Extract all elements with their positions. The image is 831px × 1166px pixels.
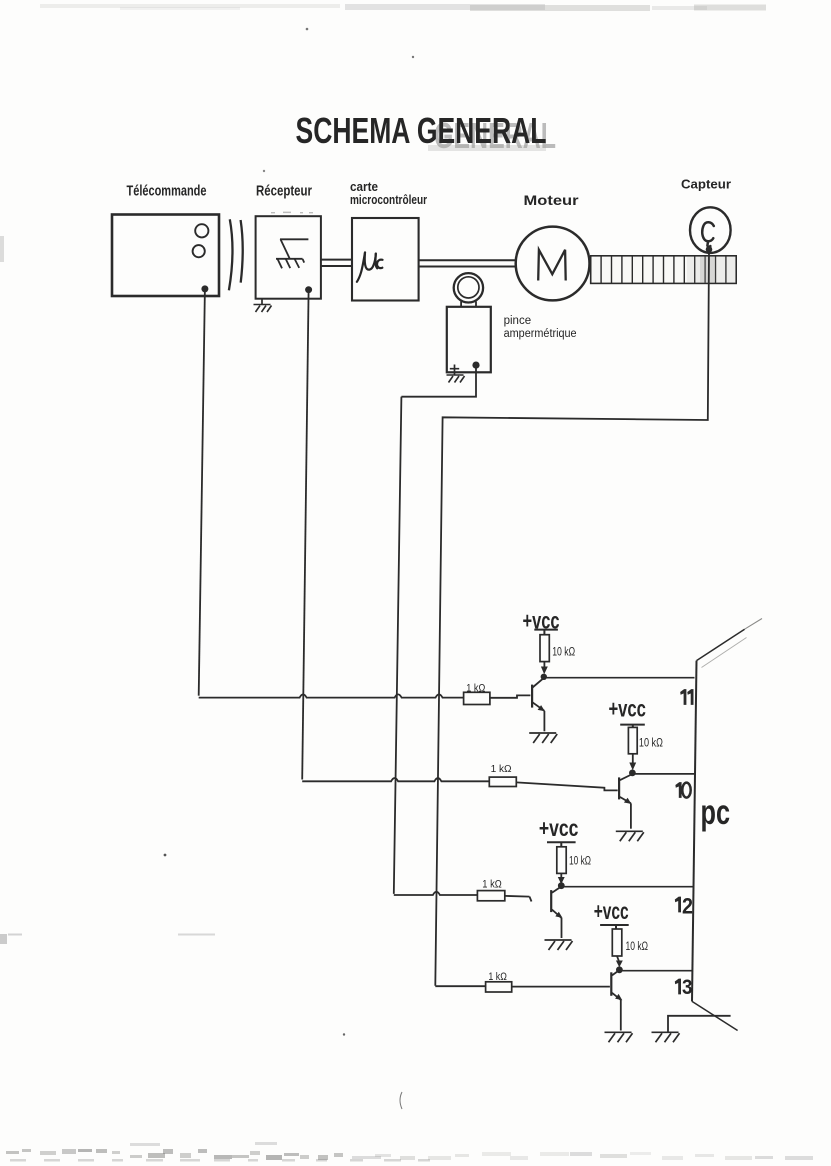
svg-text:ampermétrique: ampermétrique <box>504 328 577 340</box>
svg-text:1 kΩ: 1 kΩ <box>466 683 485 695</box>
svg-text:carte: carte <box>350 180 378 194</box>
svg-text:10 kΩ: 10 kΩ <box>626 941 649 953</box>
svg-text:1 kΩ: 1 kΩ <box>482 879 502 891</box>
svg-text:Moteur: Moteur <box>524 192 580 208</box>
svg-text:Capteur: Capteur <box>681 178 731 192</box>
svg-text:+vcc: +vcc <box>594 898 629 924</box>
svg-text:microcontrôleur: microcontrôleur <box>350 193 427 207</box>
svg-text:10 kΩ: 10 kΩ <box>639 738 663 750</box>
svg-text:3: 3 <box>682 976 693 999</box>
svg-text:+vcc: +vcc <box>608 696 646 722</box>
svg-text:pc: pc <box>701 793 731 832</box>
svg-text:pince: pince <box>504 315 531 327</box>
svg-text:Télécommande: Télécommande <box>127 183 207 200</box>
svg-text:2: 2 <box>682 894 693 919</box>
svg-text:1 kΩ: 1 kΩ <box>488 971 507 983</box>
svg-text:+vcc: +vcc <box>539 815 579 841</box>
svg-text:10 kΩ: 10 kΩ <box>569 856 591 868</box>
svg-text:Récepteur: Récepteur <box>256 183 312 200</box>
svg-text:10 kΩ: 10 kΩ <box>552 647 575 659</box>
svg-text:1 kΩ: 1 kΩ <box>491 763 512 775</box>
